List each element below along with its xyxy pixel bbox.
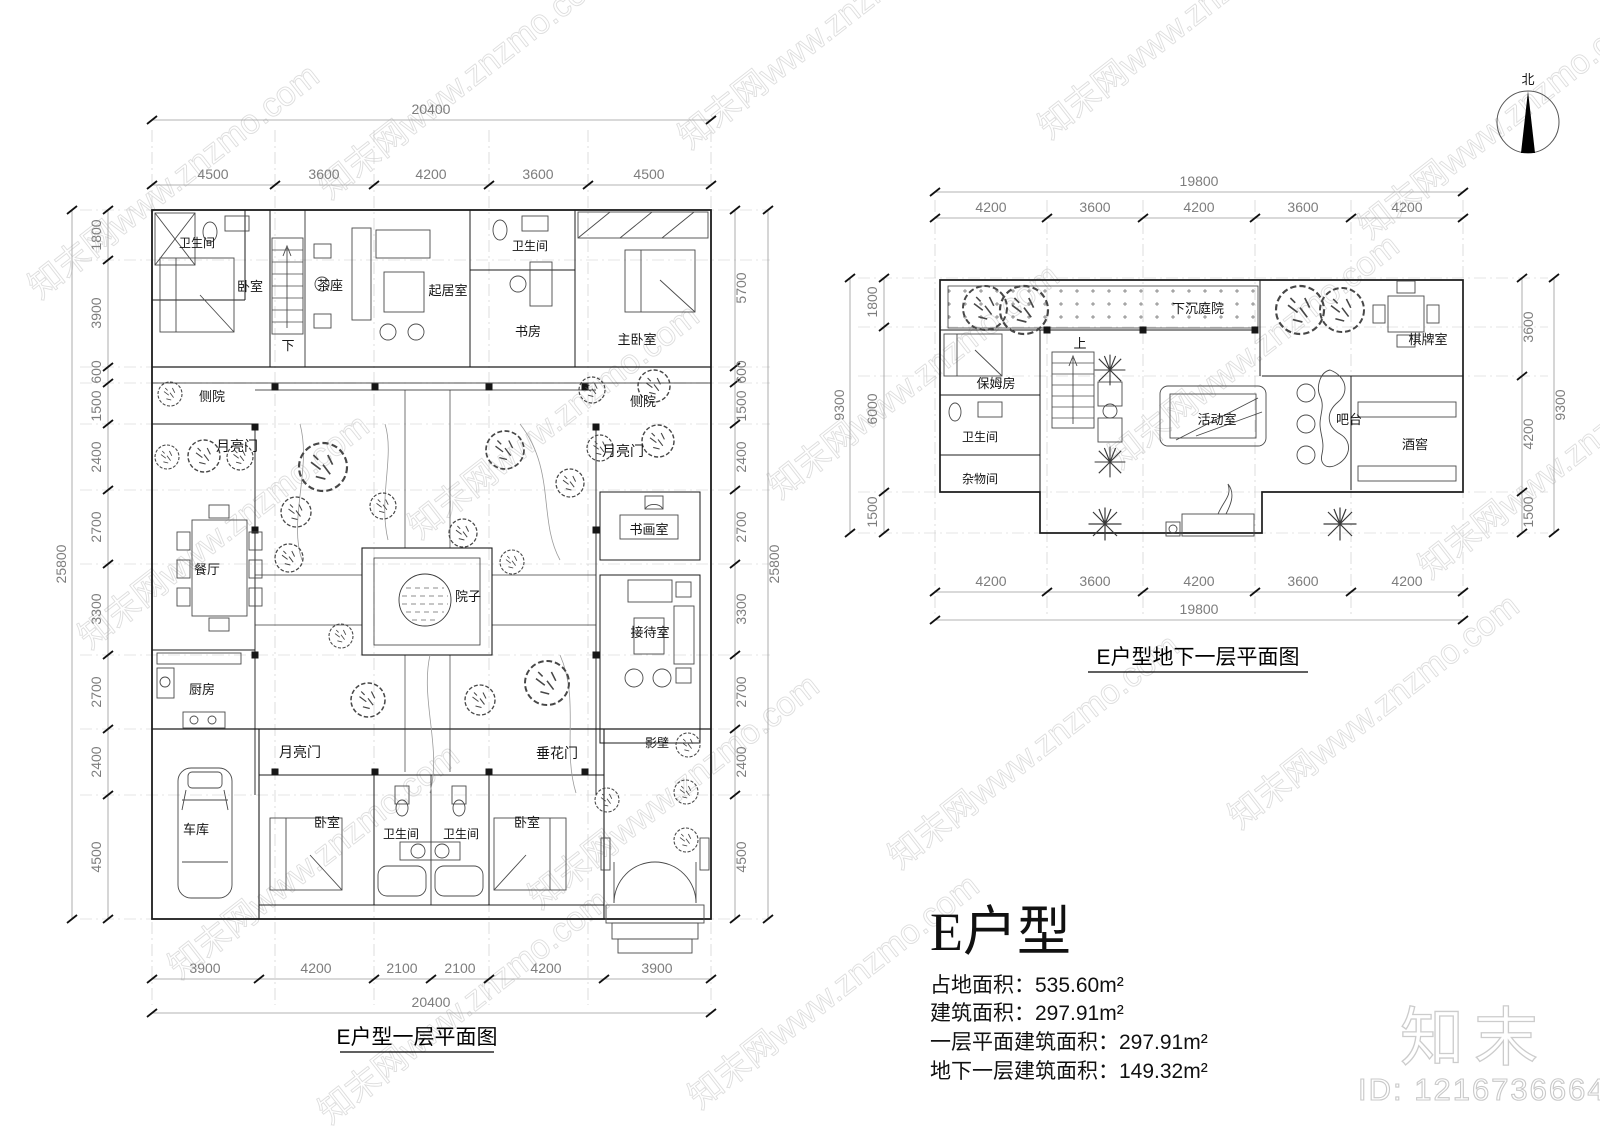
room-label-yard: 院子 — [455, 589, 481, 604]
dim-top-seg: 3600 — [308, 166, 339, 182]
watermark-text: 知末网www.znzmo.com — [312, 0, 617, 206]
dim-bottom-seg: 4200 — [1183, 573, 1214, 589]
dim-top-seg: 4200 — [975, 199, 1006, 215]
room-label-bath3: 卫生间 — [383, 827, 419, 841]
dim-top-seg: 4500 — [633, 166, 664, 182]
dim-top-seg: 4200 — [1183, 199, 1214, 215]
dim-bottom-seg: 3900 — [641, 960, 672, 976]
dim-left-seg: 4500 — [88, 841, 104, 872]
info-line-basement-area: 地下一层建筑面积：149.32m² — [930, 1060, 1208, 1083]
info-block: E户型 占地面积：535.60m² 建筑面积：297.91m² 一层平面建筑面积… — [930, 902, 1208, 1083]
dim-left-seg: 2700 — [88, 676, 104, 707]
room-label-master: 主卧室 — [617, 332, 656, 347]
dim-right-seg: 2700 — [733, 676, 749, 707]
room-label-wine: 酒窖 — [1402, 437, 1428, 452]
room-label-dining: 餐厅 — [194, 562, 220, 577]
room-label-stair-down: 下 — [281, 338, 294, 353]
watermark-text: 知末网www.znzmo.com — [1352, 0, 1600, 246]
dim-right-seg: 4500 — [733, 841, 749, 872]
dim-left-seg: 2700 — [88, 511, 104, 542]
dim-bottom-total: 19800 — [1180, 601, 1219, 617]
room-label-kitchen: 厨房 — [189, 682, 215, 697]
dim-bottom-seg: 3900 — [189, 960, 220, 976]
watermark-text: 知末网www.znzmo.com — [1102, 227, 1407, 477]
plan1-title-text: E户型一层平面图 — [336, 1026, 497, 1049]
room-label-sideyard-left: 侧院 — [199, 389, 225, 404]
room-label-sunken-courtyard: 下沉庭院 — [1172, 301, 1224, 316]
room-label-living: 起居室 — [428, 283, 467, 298]
dim-right-seg: 2400 — [733, 441, 749, 472]
dim-bottom-seg: 4200 — [530, 960, 561, 976]
room-label-study: 书房 — [515, 324, 541, 339]
dim-top-seg: 3600 — [1287, 199, 1318, 215]
dim-top-total: 20400 — [412, 101, 451, 117]
watermark-text: 知末网www.znzmo.com — [1222, 587, 1527, 837]
dim-bottom-seg: 3600 — [1079, 573, 1110, 589]
dim-right-total: 9300 — [1552, 389, 1568, 420]
dim-right-seg: 4200 — [1520, 418, 1536, 449]
image-id-text: ID: 1216736664 — [1358, 1072, 1600, 1107]
room-label-bed2: 卧室 — [314, 815, 340, 830]
dim-bottom-seg: 2100 — [444, 960, 475, 976]
dim-top-seg: 4200 — [1391, 199, 1422, 215]
dim-bottom-seg: 4200 — [300, 960, 331, 976]
room-label-basement-bath: 卫生间 — [962, 430, 998, 444]
room-label-nanny: 保姆房 — [976, 376, 1015, 391]
room-label-bath1: 卫生间 — [179, 236, 215, 250]
plan2-title-text: E户型地下一层平面图 — [1096, 646, 1299, 669]
dim-right-seg: 1500 — [733, 390, 749, 421]
dim-top-seg: 4500 — [197, 166, 228, 182]
info-line-floor-area: 建筑面积：297.91m² — [930, 1002, 1124, 1025]
room-label-bed1: 卧室 — [237, 279, 263, 294]
watermark-text: 知末网www.znzmo.com — [672, 0, 977, 156]
dim-left-seg: 2400 — [88, 441, 104, 472]
room-label-bed3: 卧室 — [514, 815, 540, 830]
gate-label-moongate-topright: 月亮门 — [602, 443, 644, 459]
room-label-storage: 杂物间 — [962, 472, 998, 486]
room-label-sideyard-right: 侧院 — [630, 394, 656, 409]
dim-top-seg: 3600 — [1079, 199, 1110, 215]
znzmo-logo: 知末 — [1400, 1002, 1548, 1074]
dim-left-seg: 2400 — [88, 746, 104, 777]
plan1-title: E户型一层平面图 — [336, 1026, 497, 1052]
room-label-reception: 接待室 — [630, 625, 669, 640]
dim-top-seg: 4200 — [415, 166, 446, 182]
dim-left-seg: 1800 — [864, 286, 880, 317]
watermark-tiles: 知末网www.znzmo.com 知末网www.znzmo.com 知末网www… — [22, 0, 1600, 1131]
room-label-art: 书画室 — [629, 522, 668, 537]
info-line-first-floor-area: 一层平面建筑面积：297.91m² — [930, 1031, 1208, 1054]
dim-bottom-seg: 3600 — [1287, 573, 1318, 589]
plan2-title: E户型地下一层平面图 — [1088, 646, 1308, 672]
site-watermark-logo: 知末 ID: 1216736664 — [1358, 1002, 1600, 1107]
dim-right-total: 25800 — [766, 544, 782, 583]
dim-right-seg: 1500 — [1520, 496, 1536, 527]
room-label-bath2: 卫生间 — [512, 239, 548, 253]
dim-right-seg: 2400 — [733, 746, 749, 777]
dim-bottom-seg: 2100 — [386, 960, 417, 976]
gate-label-moongate-bottom: 月亮门 — [279, 744, 321, 760]
room-label-tea: 茶座 — [317, 278, 343, 293]
room-label-activity: 活动室 — [1197, 412, 1236, 427]
dim-left-seg: 1800 — [88, 219, 104, 250]
dim-bottom-seg: 4200 — [975, 573, 1006, 589]
room-label-bar: 吧台 — [1336, 412, 1362, 427]
watermark-text: 知末网www.znzmo.com — [22, 57, 327, 307]
unit-type-title: E户型 — [930, 902, 1071, 962]
watermark-text: 知末网www.znzmo.com — [1032, 0, 1337, 146]
dim-left-seg: 600 — [88, 360, 104, 384]
dim-right-seg: 3300 — [733, 593, 749, 624]
dim-left-seg: 1500 — [864, 496, 880, 527]
room-label-chess: 棋牌室 — [1408, 332, 1447, 347]
dim-left-seg: 3900 — [88, 297, 104, 328]
watermark-text: 知末网www.znzmo.com — [162, 737, 467, 987]
dim-right-seg: 3600 — [1520, 311, 1536, 342]
dim-left-total: 25800 — [53, 544, 69, 583]
dim-left-total: 9300 — [831, 389, 847, 420]
gate-label-flower-gate: 垂花门 — [536, 745, 578, 761]
dim-bottom-total: 20400 — [412, 994, 451, 1010]
dim-right-seg: 5700 — [733, 272, 749, 303]
north-label: 北 — [1521, 72, 1534, 87]
dim-top-total: 19800 — [1180, 173, 1219, 189]
info-line-land-area: 占地面积：535.60m² — [930, 974, 1124, 997]
dim-bottom-seg: 4200 — [1391, 573, 1422, 589]
cad-drawing-sheet: 知末网www.znzmo.com 知末网www.znzmo.com 知末网www… — [0, 0, 1600, 1131]
dim-top-seg: 3600 — [522, 166, 553, 182]
room-label-bath4: 卫生间 — [443, 827, 479, 841]
gate-label-moongate-topleft: 月亮门 — [216, 438, 258, 454]
dim-right-seg: 2700 — [733, 511, 749, 542]
dim-left-seg: 1500 — [88, 390, 104, 421]
dim-left-seg: 6000 — [864, 393, 880, 424]
floorplan-svg: 知末网www.znzmo.com 知末网www.znzmo.com 知末网www… — [0, 0, 1600, 1131]
watermark-text: 知末网www.znzmo.com — [1412, 337, 1600, 587]
room-label-garage: 车库 — [183, 822, 209, 837]
room-label-stair-up: 上 — [1073, 336, 1086, 351]
room-label-screen-wall: 影壁 — [645, 735, 669, 750]
dim-right-seg: 600 — [733, 360, 749, 384]
dim-left-seg: 3300 — [88, 593, 104, 624]
